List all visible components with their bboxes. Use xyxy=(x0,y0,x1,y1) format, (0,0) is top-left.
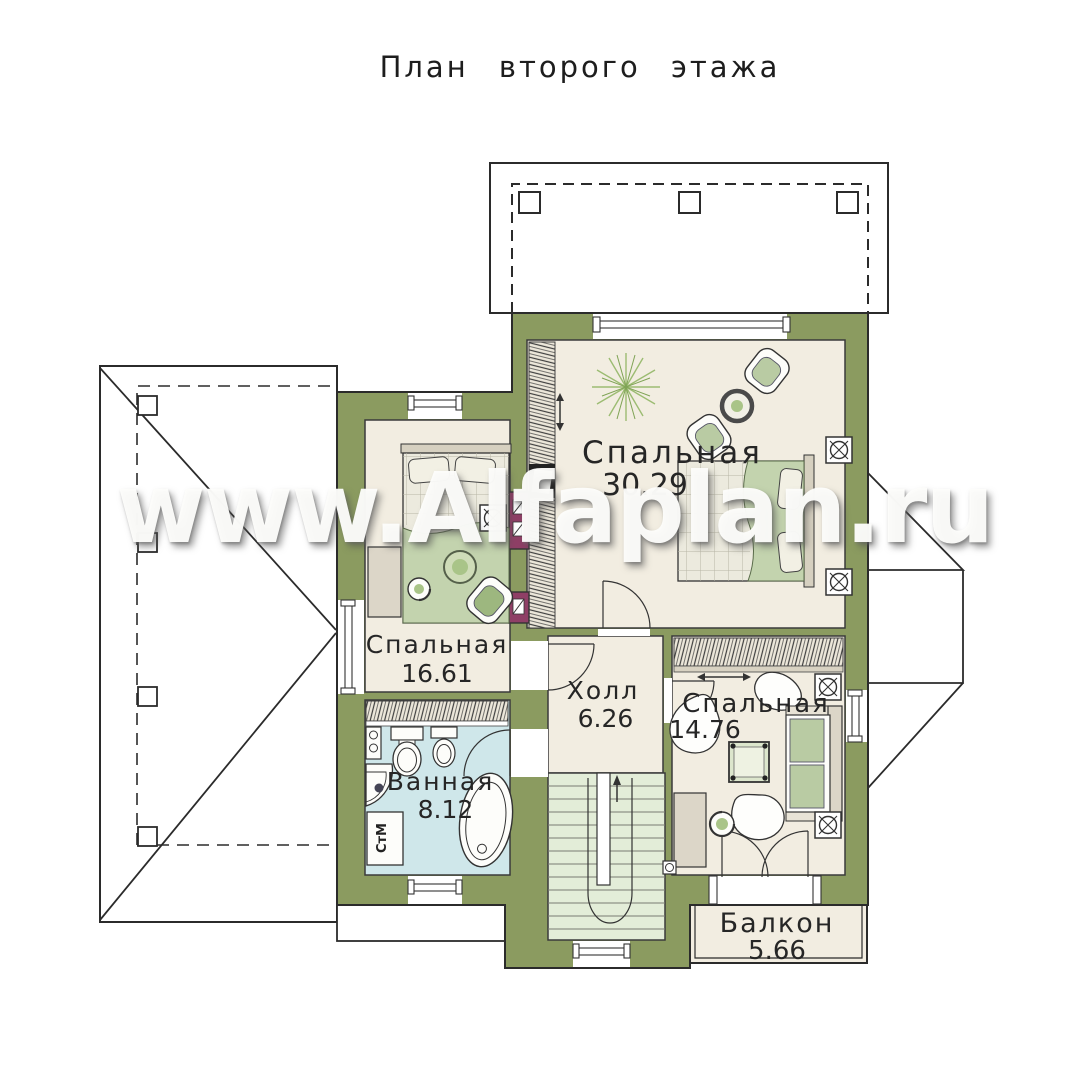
watermark: www.Alfaplan.ru xyxy=(116,452,1036,565)
floor-plan-page: План второго этажа Спальная 30.29 Спальн… xyxy=(0,0,1080,1080)
page-title: План второго этажа xyxy=(355,50,805,84)
bidet xyxy=(431,727,457,767)
room-label-bedroom-16-name: Спальная xyxy=(357,632,517,657)
porch-roof-outline xyxy=(337,905,508,941)
desk xyxy=(674,793,706,867)
room-label-hall-name: Холл xyxy=(528,678,678,703)
side-table xyxy=(663,861,676,874)
room-label-balcony-area: 5.66 xyxy=(688,938,866,964)
window-bathroom-south xyxy=(408,876,462,904)
window-bedroom-30-north xyxy=(593,314,790,339)
floor-lamp-icon xyxy=(408,578,430,600)
floor-lamp-icon xyxy=(710,812,734,836)
garage-roof-outline xyxy=(100,366,337,922)
room-label-bedroom-14-name: Спальная xyxy=(665,691,847,717)
ceiling-light-icon xyxy=(826,569,852,595)
stair-stringer xyxy=(597,773,610,885)
round-table xyxy=(722,391,752,421)
ceiling-light-icon xyxy=(815,812,841,838)
washing-machine-label: СтМ xyxy=(375,813,395,863)
room-label-bedroom-16-area: 16.61 xyxy=(357,661,517,686)
window-bedroom-16-north xyxy=(408,393,462,419)
room-label-bathroom-name: Ванная xyxy=(363,769,518,794)
room-label-bedroom-14-area: 14.76 xyxy=(630,717,780,742)
window-stairwell-south xyxy=(573,941,630,967)
terrace-roof-outline xyxy=(490,163,888,313)
room-label-balcony-name: Балкон xyxy=(688,910,866,937)
bathroom-cabinet xyxy=(366,727,381,759)
window-bedroom-14-east xyxy=(846,690,867,742)
wardrobe-bathroom xyxy=(366,701,508,726)
sofa xyxy=(786,706,842,821)
square-table xyxy=(729,742,769,782)
